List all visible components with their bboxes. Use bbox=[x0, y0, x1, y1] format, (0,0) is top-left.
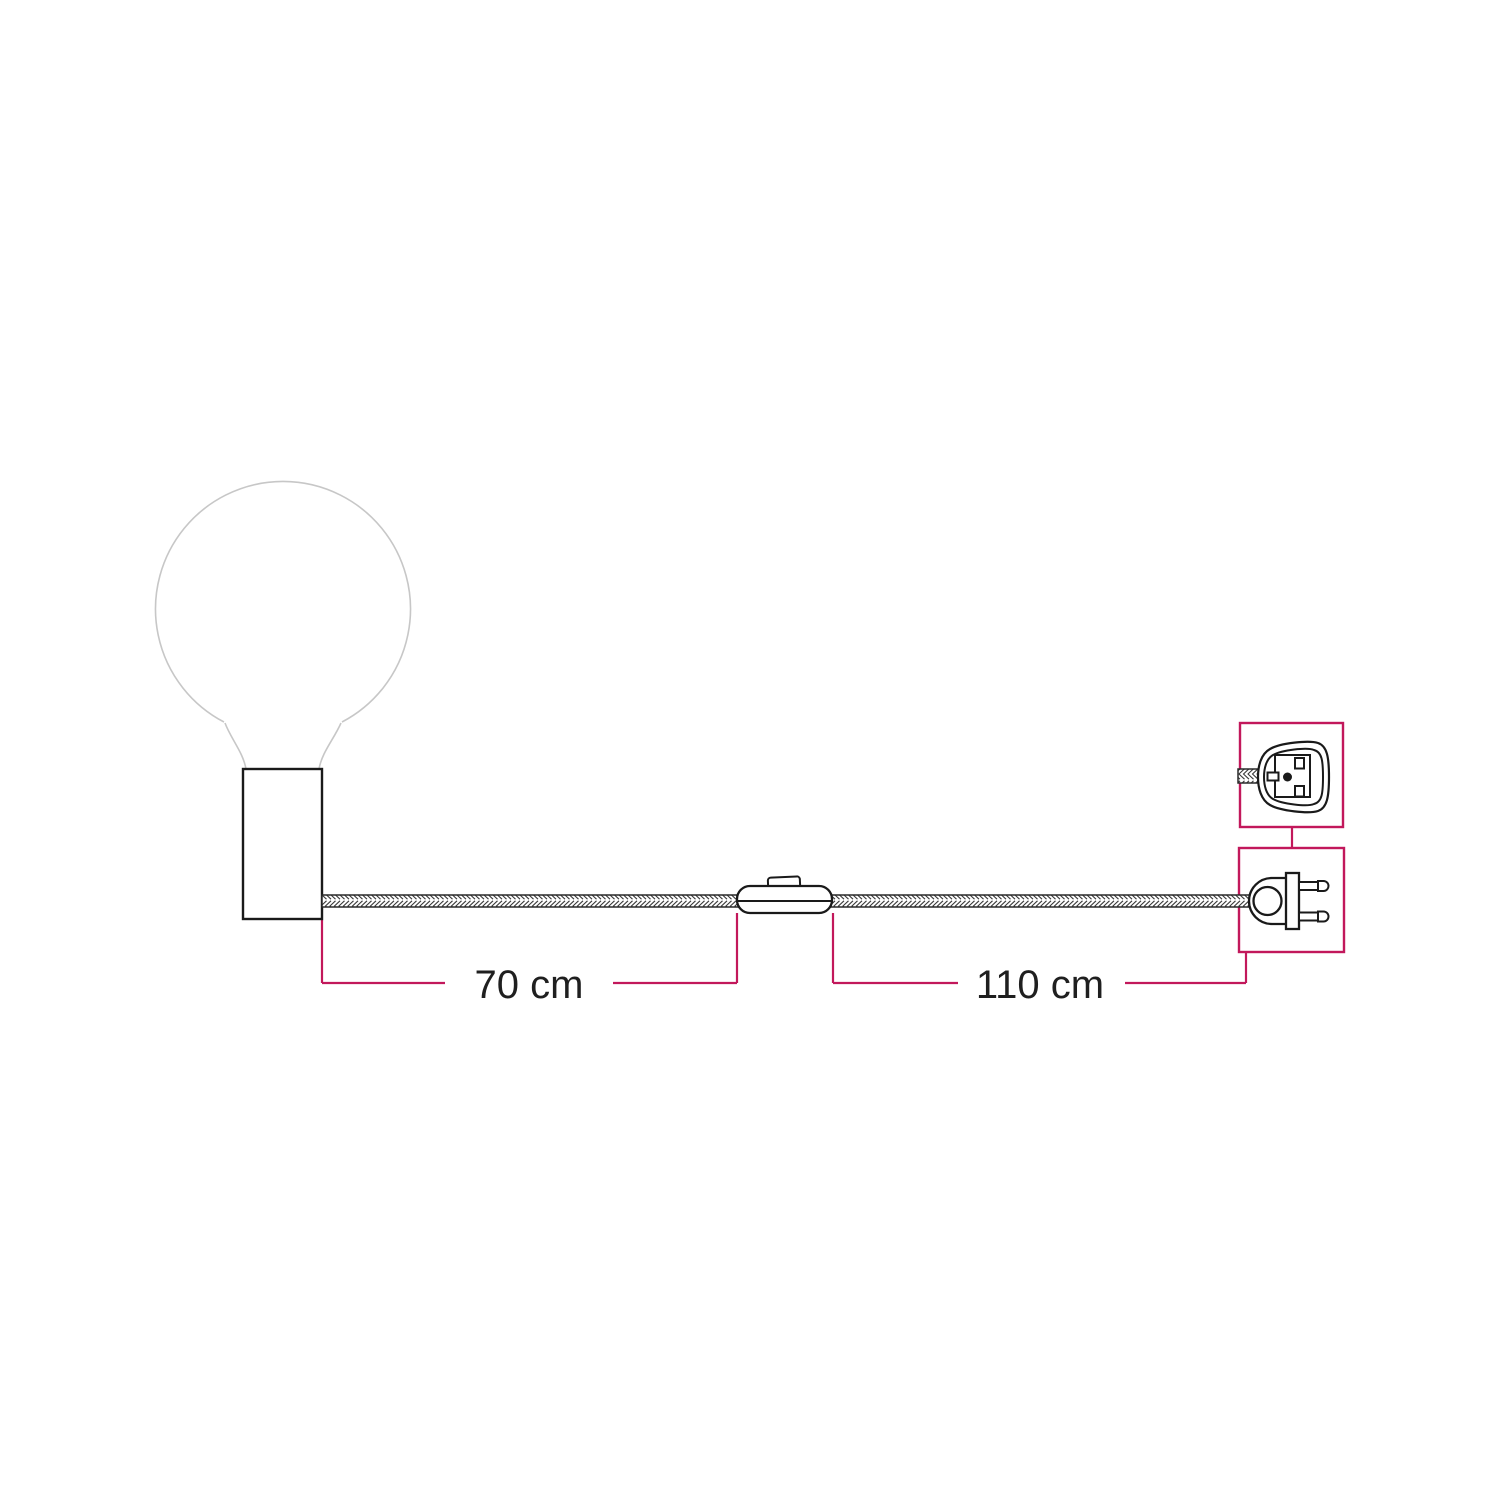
plug-front-center-dot bbox=[1283, 773, 1292, 782]
bulb-neck-left bbox=[225, 723, 246, 769]
lamp-holder-icon bbox=[243, 769, 322, 919]
plug-side-face-plate bbox=[1286, 873, 1299, 929]
cable-segment-switch-to-plug bbox=[831, 895, 1255, 907]
dimension-70-label: 70 cm bbox=[475, 963, 584, 1007]
bulb-glass-outline bbox=[156, 481, 411, 722]
canvas: 70 cm 110 cm bbox=[0, 0, 1500, 1500]
plug-side-pin-bottom-shaft bbox=[1299, 913, 1318, 921]
plug-side-pin-bottom-tip bbox=[1318, 912, 1329, 922]
plug-side-pin-top-tip bbox=[1318, 881, 1329, 891]
dimension-110-label: 110 cm bbox=[976, 963, 1104, 1007]
inline-switch-icon bbox=[737, 876, 832, 913]
switch-body bbox=[737, 886, 832, 913]
plug-side-pin-top-shaft bbox=[1299, 882, 1318, 890]
lamp-kit-diagram: 70 cm 110 cm bbox=[0, 0, 1500, 1500]
plug-front-slot bbox=[1268, 773, 1279, 781]
two-pin-plug-front-icon bbox=[1258, 742, 1329, 812]
plug-front-pin-hole-bottom bbox=[1295, 786, 1304, 797]
cable-segment-holder-to-switch bbox=[322, 895, 742, 907]
globe-bulb-icon bbox=[156, 481, 411, 769]
plug-side-grip-hole bbox=[1254, 887, 1282, 915]
plug-front-pin-hole-top bbox=[1295, 758, 1304, 769]
bulb-neck-right bbox=[319, 723, 341, 769]
